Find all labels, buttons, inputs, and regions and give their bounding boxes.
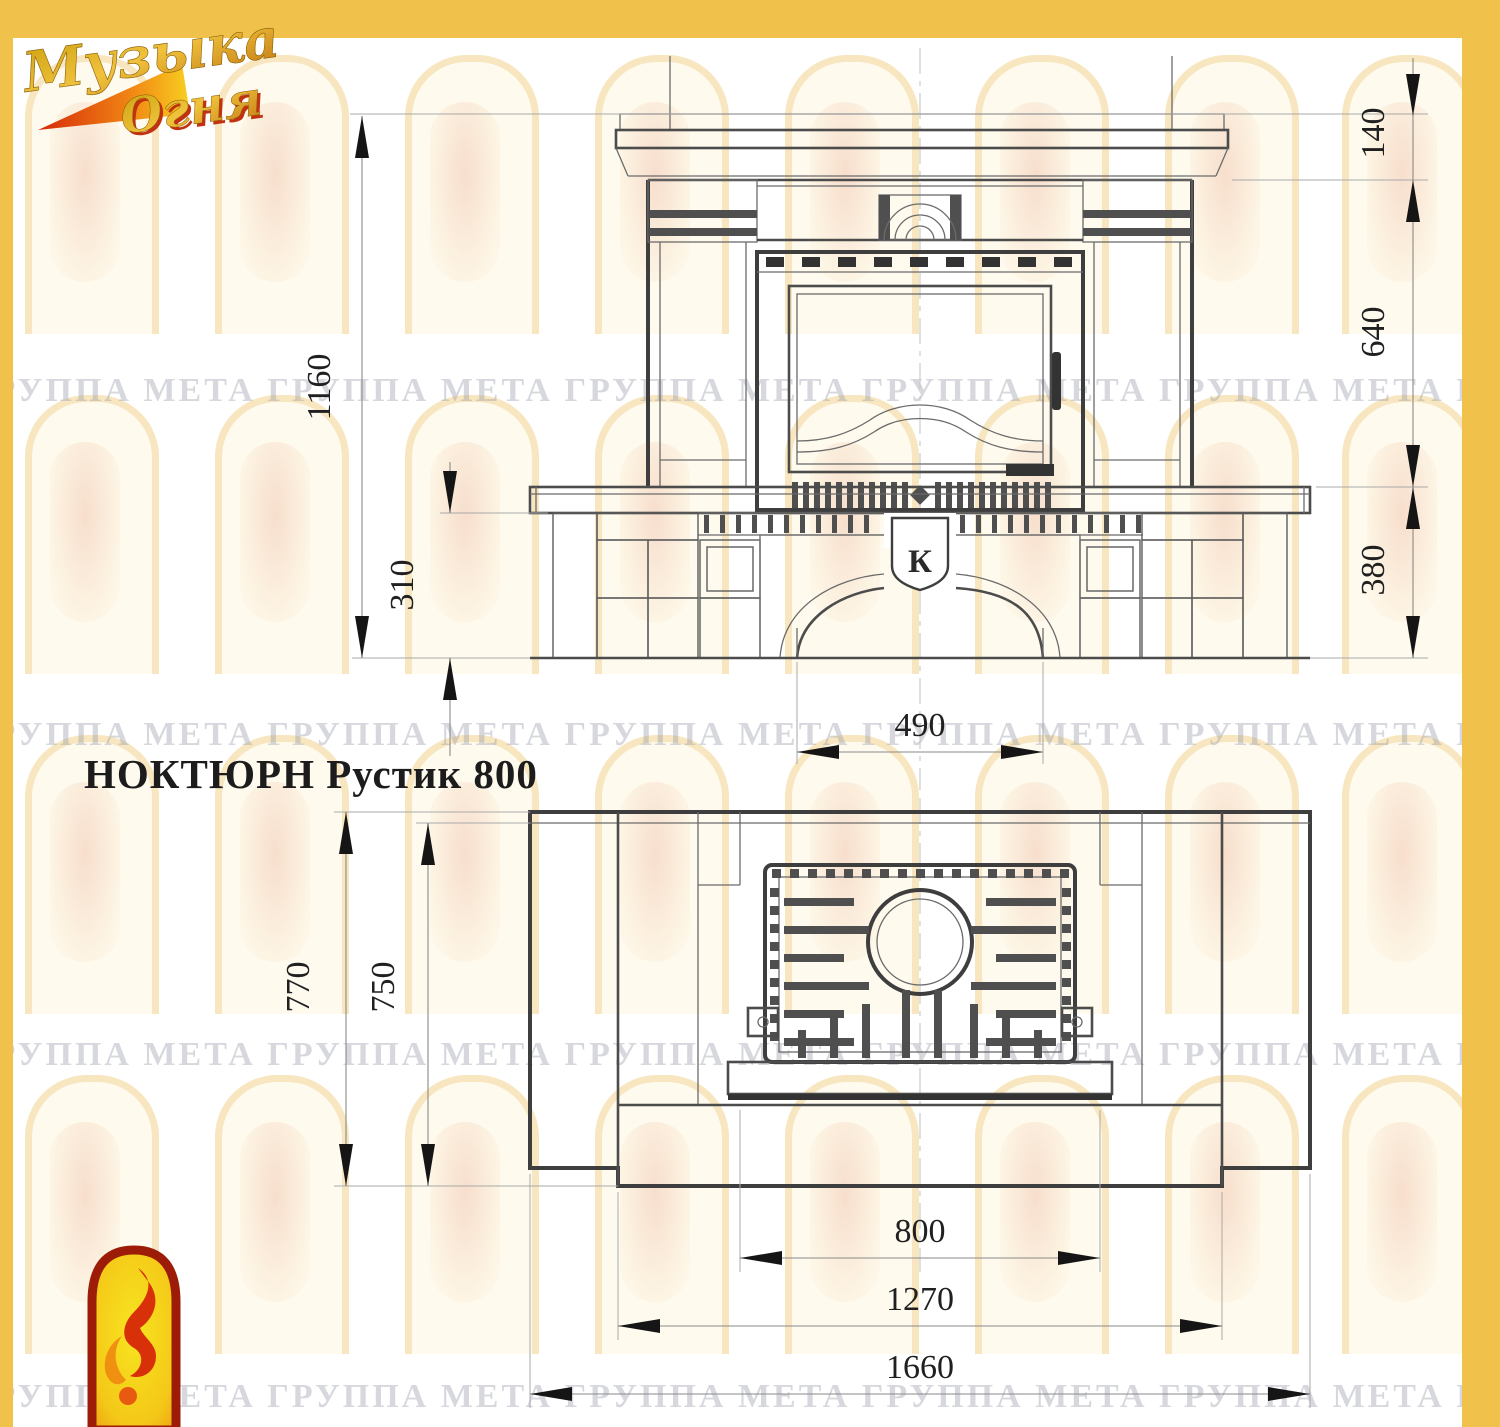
front-view: К (352, 48, 1428, 790)
dimension-arrowhead (421, 1144, 435, 1186)
dim-plan-total-width: 1660 (886, 1349, 954, 1386)
shield-emblem: К (884, 513, 956, 590)
dimension-arrowhead (1001, 745, 1043, 759)
dimension-arrowhead (339, 812, 353, 854)
dim-plan-depth-inner: 750 (365, 962, 402, 1013)
dim-plan-insert-width: 800 (895, 1213, 946, 1250)
plan-view (530, 798, 1310, 1272)
dim-front-base-height: 380 (1355, 545, 1392, 596)
lintel-dashes (766, 257, 1072, 267)
dimension-arrowhead (1058, 1251, 1100, 1265)
dimension-arrowhead (1406, 616, 1420, 658)
dimension-arrowhead (443, 471, 457, 513)
dimension-arrowhead (355, 116, 369, 158)
dimension-arrowhead (1268, 1387, 1310, 1401)
emblem-dot (119, 1387, 137, 1405)
dimension-arrowhead (339, 1144, 353, 1186)
dim-front-total-height: 1160 (301, 354, 338, 421)
dimension-arrowhead (618, 1319, 660, 1333)
base-plate-shadow (728, 1094, 1112, 1100)
dimension-arrowhead (1406, 487, 1420, 529)
dimension-arrowhead (355, 616, 369, 658)
dimension-arrowhead (530, 1387, 572, 1401)
dim-front-body-height: 640 (1355, 307, 1392, 358)
dim-front-portal-width: 490 (895, 707, 946, 744)
dimension-arrowhead (421, 823, 435, 865)
arch-emblem (82, 1240, 192, 1427)
dimension-arrowhead (1406, 180, 1420, 222)
dimension-arrowhead (1406, 445, 1420, 487)
cornice (616, 114, 1228, 180)
dimension-arrowhead (740, 1251, 782, 1265)
door-handle (1052, 352, 1061, 410)
catalog-page: ГРУППА МЕТА ГРУППА МЕТА ГРУППА МЕТА ГРУП… (0, 0, 1500, 1427)
dim-plan-hearth-width: 1270 (886, 1281, 954, 1318)
door-sill-block (1006, 464, 1054, 476)
technical-drawing: К 1160 310 140 640 380 (0, 0, 1500, 1427)
shield-letter: К (908, 544, 932, 580)
dimension-arrowhead (797, 745, 839, 759)
dim-front-plinth-height: 310 (384, 560, 421, 611)
dim-front-cornice-height: 140 (1355, 108, 1392, 159)
dimension-arrowhead (443, 658, 457, 700)
dim-plan-depth-outer: 770 (280, 962, 317, 1013)
dimension-arrowhead (1406, 74, 1420, 116)
dimension-arrowhead (1180, 1319, 1222, 1333)
dimension-arrows (339, 74, 1420, 1401)
